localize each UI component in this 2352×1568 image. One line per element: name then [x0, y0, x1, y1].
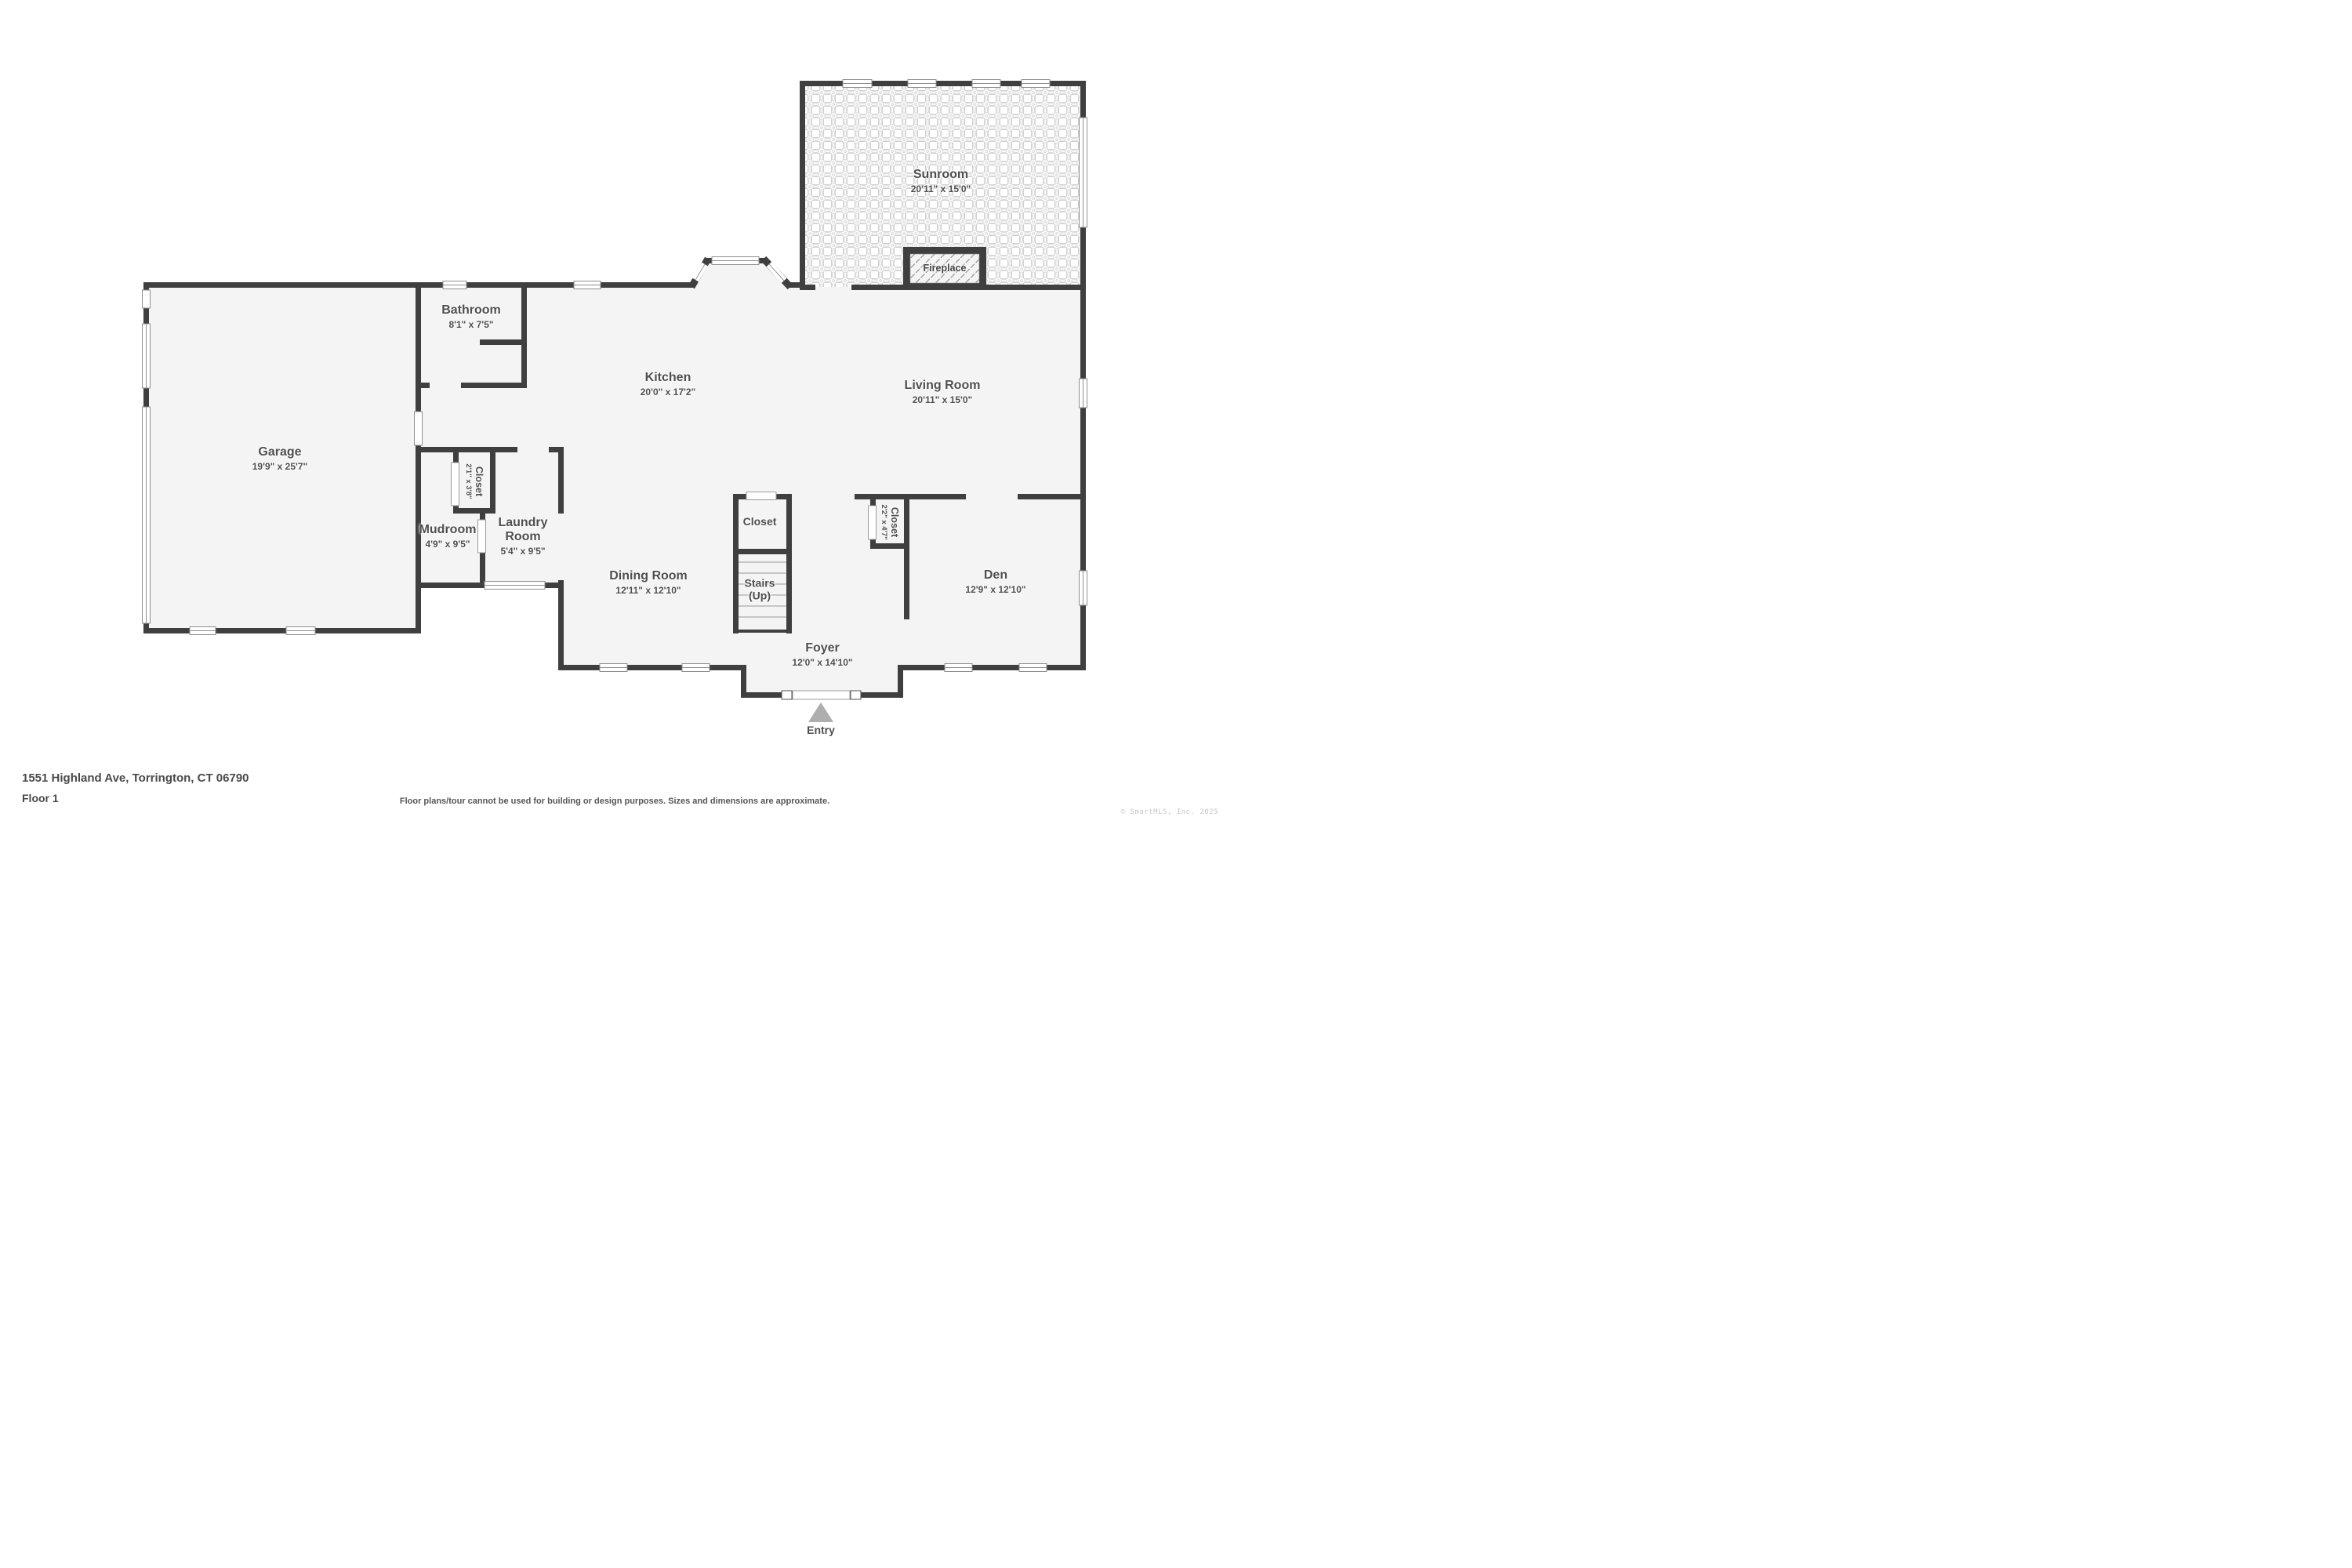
floorplan-drawing — [0, 0, 1229, 819]
fireplace-block — [903, 247, 986, 290]
address-text: 1551 Highland Ave, Torrington, CT 06790 — [22, 771, 249, 785]
entry-door — [782, 691, 861, 699]
disclaimer-text: Floor plans/tour cannot be used for buil… — [0, 797, 1229, 806]
floor-fill — [143, 83, 1086, 698]
entry-arrow-icon — [808, 702, 833, 722]
floorplan-page: Sunroom 20'11" x 15'0" Fireplace Bathroo… — [0, 0, 1229, 819]
copyright-text: © SmartMLS, Inc. 2025 — [1121, 808, 1218, 816]
